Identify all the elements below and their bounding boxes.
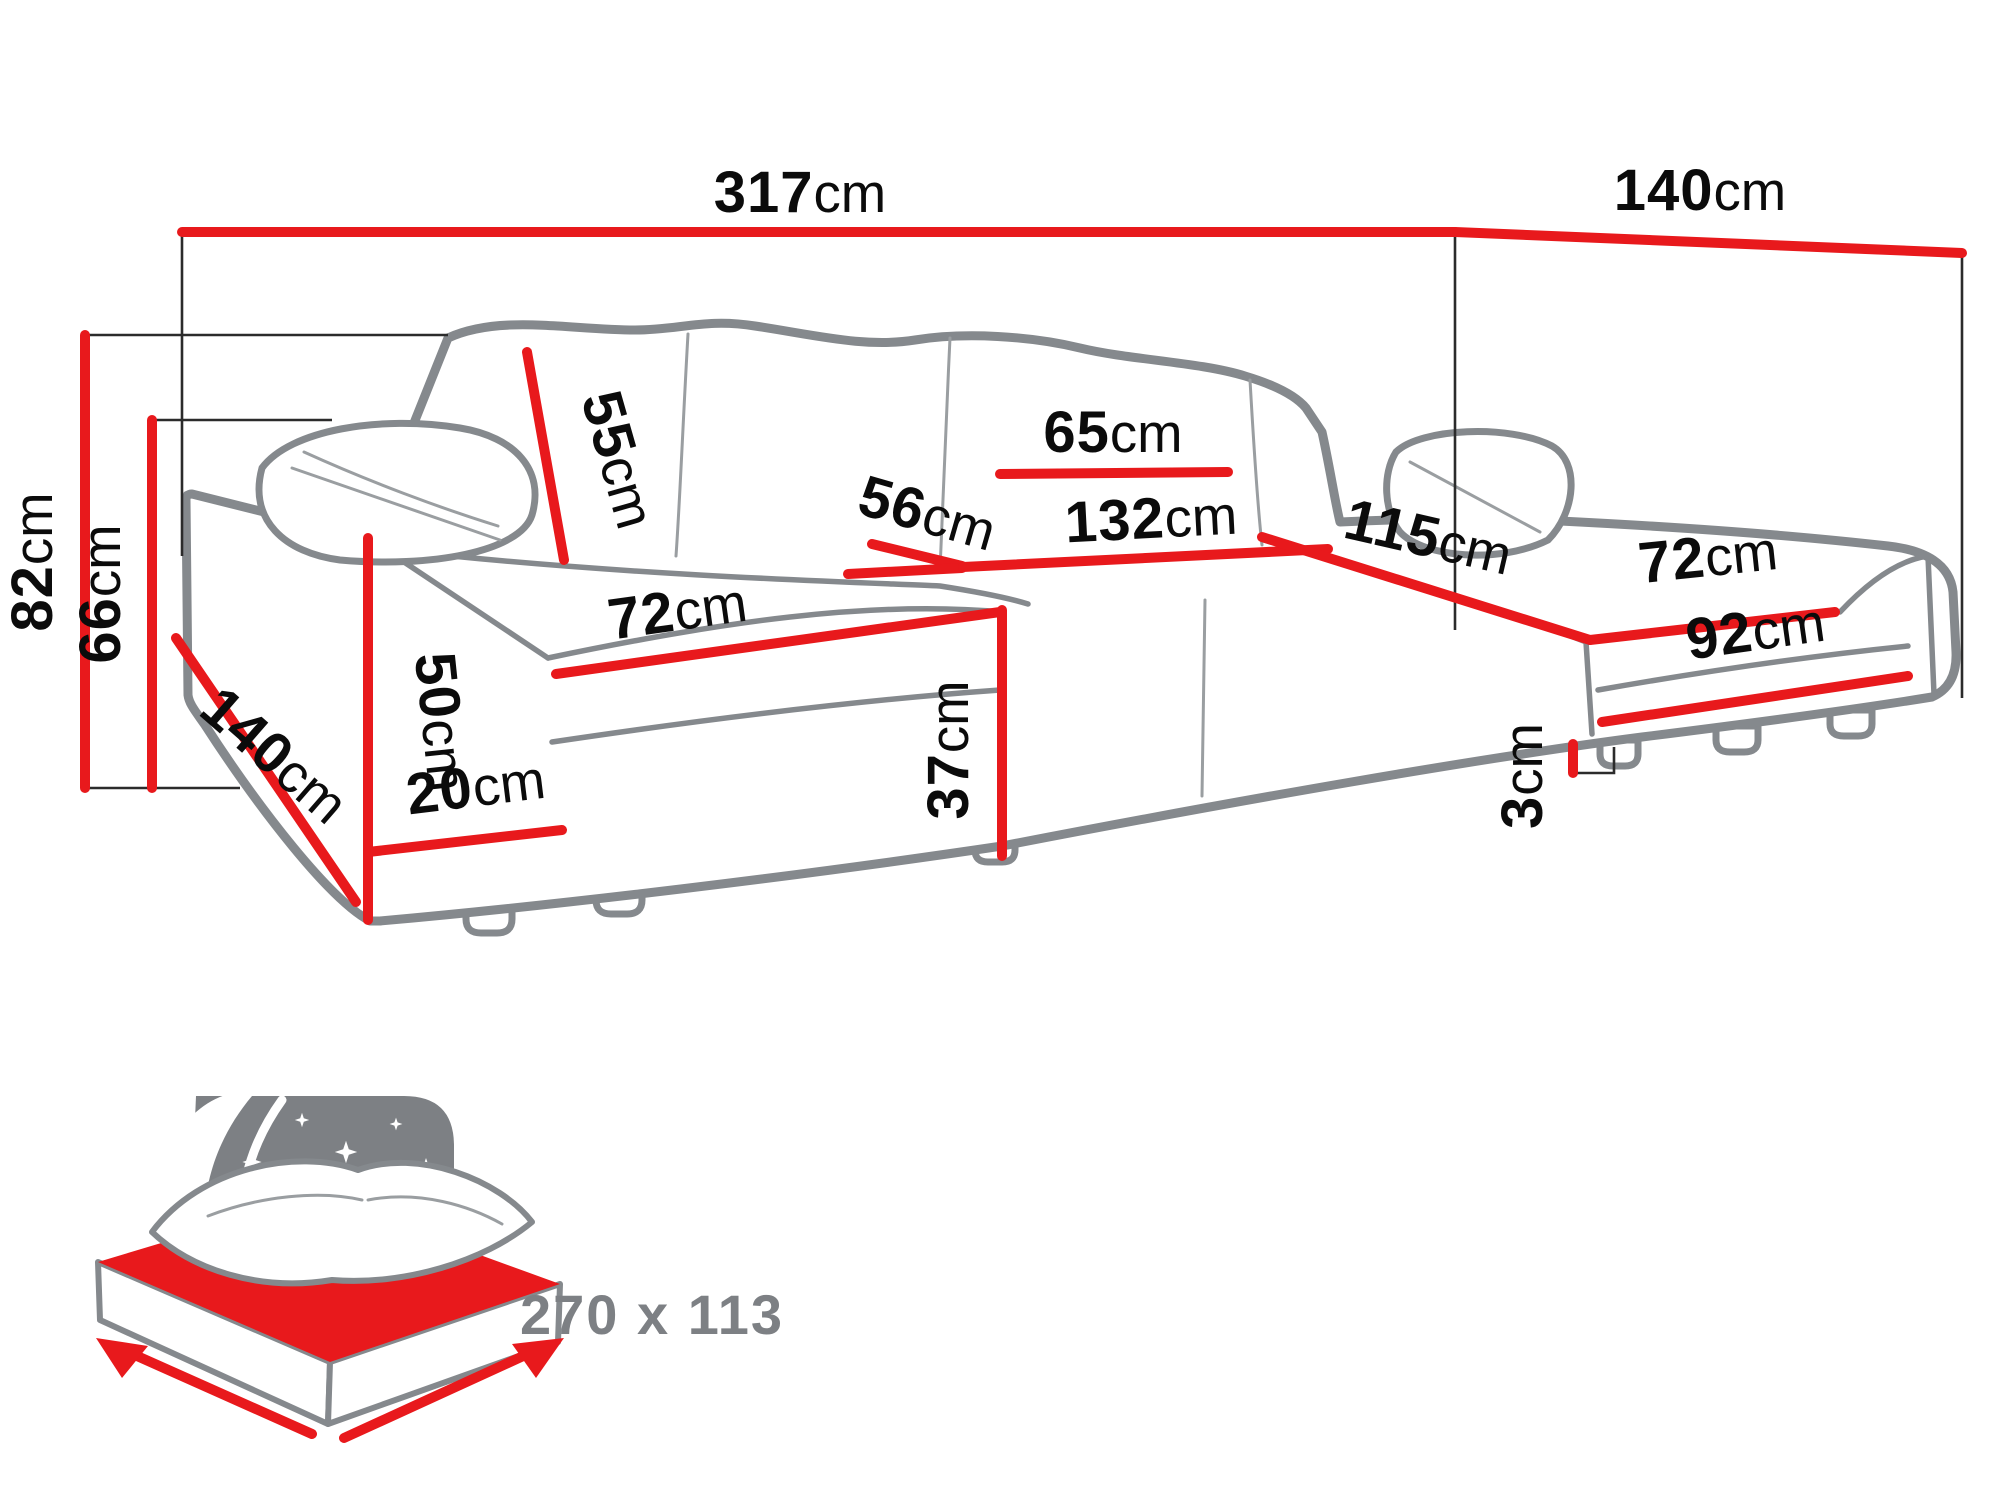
dim-back-cushion-width-line [1000,472,1228,474]
dim-middle-seat-width-label: 132cm [1063,482,1239,556]
dim-back-cushion-width-label: 65cm [1043,400,1182,465]
dim-seat-height-label: 37cm [916,680,981,819]
dim-total-depth-right-line [1455,232,1962,253]
sofa-dimension-diagram: 317cm 140cm 82cm 66cm 55cm 65cm 56cm 132… [0,0,2000,1500]
dim-total-width-label: 317cm [714,160,886,225]
dim-leg-height-label: 3cm [1490,723,1555,829]
dim-total-depth-right-label: 140cm [1614,158,1786,223]
dim-seat-depth-line-b [848,568,962,574]
sleeping-size-label: 270 x 113 [520,1283,784,1346]
left-arm-pillow [259,423,535,562]
dim-total-height-label: 82cm [0,492,65,631]
sleeping-function: 270 x 113 [96,1094,784,1438]
dim-back-height-label: 66cm [68,524,133,663]
